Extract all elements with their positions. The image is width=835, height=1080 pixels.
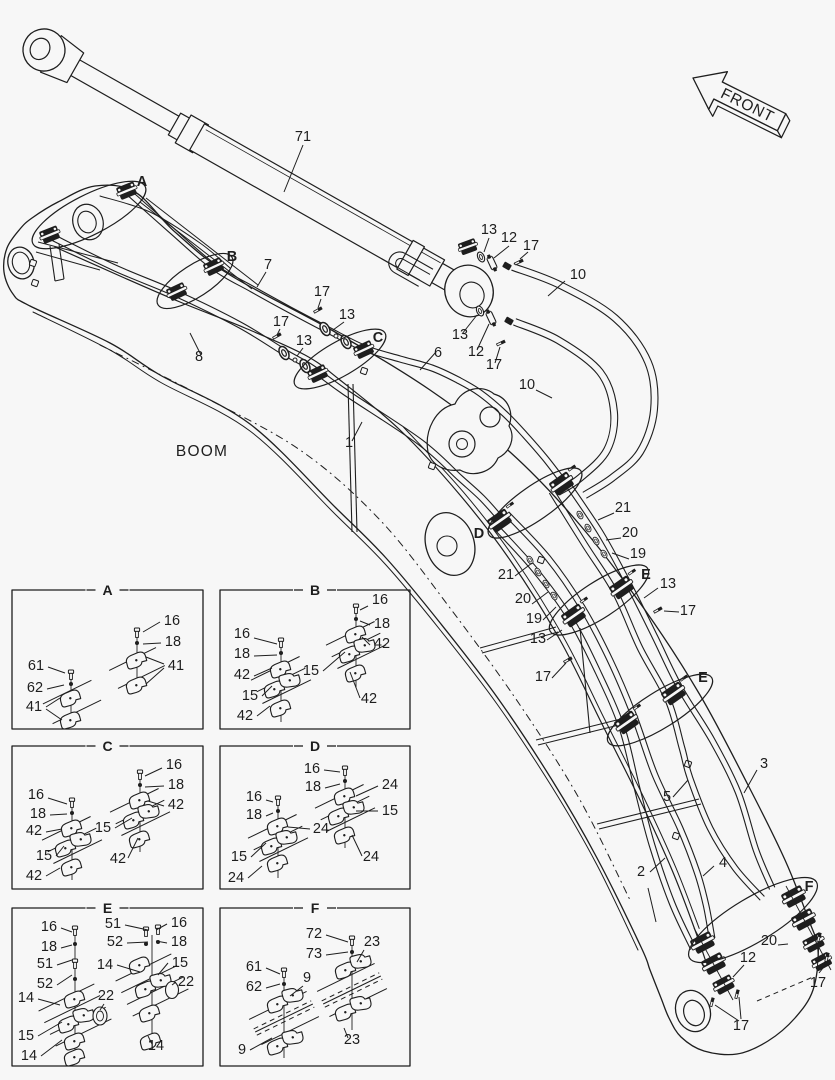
svg-text:10: 10: [570, 267, 586, 283]
svg-text:42: 42: [361, 691, 377, 707]
svg-text:E: E: [103, 900, 112, 916]
svg-text:F: F: [311, 900, 320, 916]
svg-text:41: 41: [168, 658, 184, 674]
svg-text:24: 24: [363, 849, 379, 865]
svg-text:13: 13: [660, 576, 676, 592]
svg-text:14: 14: [97, 957, 113, 973]
svg-text:2: 2: [637, 864, 645, 880]
svg-text:16: 16: [28, 787, 44, 803]
svg-text:61: 61: [246, 959, 262, 975]
svg-text:1: 1: [345, 435, 353, 451]
svg-text:19: 19: [630, 546, 646, 562]
svg-text:17: 17: [810, 975, 826, 991]
svg-text:12: 12: [740, 950, 756, 966]
svg-text:18: 18: [171, 934, 187, 950]
svg-text:42: 42: [26, 823, 42, 839]
svg-text:12: 12: [501, 230, 517, 246]
svg-text:17: 17: [523, 238, 539, 254]
svg-text:10: 10: [519, 377, 535, 393]
svg-text:A: A: [102, 582, 112, 598]
svg-text:BOOM: BOOM: [176, 443, 228, 460]
svg-text:18: 18: [305, 779, 321, 795]
svg-text:17: 17: [486, 357, 502, 373]
svg-text:42: 42: [374, 636, 390, 652]
svg-text:20: 20: [515, 591, 531, 607]
svg-text:24: 24: [313, 821, 329, 837]
svg-text:3: 3: [760, 756, 768, 772]
svg-text:B: B: [227, 249, 237, 265]
svg-text:42: 42: [237, 708, 253, 724]
svg-text:14: 14: [18, 990, 34, 1006]
svg-text:52: 52: [37, 976, 53, 992]
svg-text:A: A: [137, 174, 148, 190]
svg-text:E: E: [698, 670, 708, 686]
svg-text:61: 61: [28, 658, 44, 674]
svg-text:15: 15: [231, 849, 247, 865]
svg-text:15: 15: [172, 955, 188, 971]
svg-text:73: 73: [306, 946, 322, 962]
svg-text:18: 18: [234, 646, 250, 662]
svg-text:18: 18: [41, 939, 57, 955]
svg-text:15: 15: [95, 820, 111, 836]
svg-text:5: 5: [663, 789, 671, 805]
svg-text:24: 24: [228, 870, 244, 886]
svg-text:18: 18: [374, 616, 390, 632]
svg-text:16: 16: [171, 915, 187, 931]
svg-text:13: 13: [296, 333, 312, 349]
svg-text:16: 16: [41, 919, 57, 935]
svg-text:42: 42: [168, 797, 184, 813]
svg-text:17: 17: [273, 314, 289, 330]
svg-text:17: 17: [680, 603, 696, 619]
svg-text:C: C: [102, 738, 112, 754]
svg-text:19: 19: [526, 611, 542, 627]
svg-text:42: 42: [26, 868, 42, 884]
svg-text:9: 9: [303, 970, 311, 986]
svg-text:51: 51: [105, 916, 121, 932]
svg-text:17: 17: [535, 669, 551, 685]
svg-text:62: 62: [246, 979, 262, 995]
svg-text:52: 52: [107, 934, 123, 950]
svg-text:17: 17: [314, 284, 330, 300]
svg-text:17: 17: [733, 1018, 749, 1034]
svg-text:51: 51: [37, 956, 53, 972]
svg-text:15: 15: [36, 848, 52, 864]
svg-text:C: C: [373, 330, 384, 346]
svg-text:42: 42: [110, 851, 126, 867]
svg-text:72: 72: [306, 926, 322, 942]
svg-text:16: 16: [372, 592, 388, 608]
svg-text:B: B: [310, 582, 320, 598]
svg-text:12: 12: [468, 344, 484, 360]
svg-text:16: 16: [234, 626, 250, 642]
svg-text:4: 4: [719, 855, 727, 871]
svg-text:20: 20: [622, 525, 638, 541]
svg-text:16: 16: [164, 613, 180, 629]
svg-text:62: 62: [27, 680, 43, 696]
svg-text:15: 15: [382, 803, 398, 819]
svg-text:9: 9: [238, 1042, 246, 1058]
svg-text:13: 13: [530, 631, 546, 647]
svg-text:18: 18: [246, 807, 262, 823]
svg-text:16: 16: [166, 757, 182, 773]
svg-text:15: 15: [242, 688, 258, 704]
svg-text:7: 7: [264, 257, 272, 273]
svg-text:F: F: [805, 879, 814, 895]
svg-text:16: 16: [246, 789, 262, 805]
svg-text:E: E: [641, 567, 651, 583]
svg-text:D: D: [474, 526, 484, 542]
svg-text:18: 18: [168, 777, 184, 793]
svg-text:21: 21: [615, 500, 631, 516]
svg-text:22: 22: [98, 988, 114, 1004]
svg-text:14: 14: [21, 1048, 37, 1064]
svg-text:22: 22: [178, 974, 194, 990]
svg-text:15: 15: [18, 1028, 34, 1044]
svg-text:20: 20: [761, 933, 777, 949]
svg-text:18: 18: [165, 634, 181, 650]
svg-text:15: 15: [303, 663, 319, 679]
svg-text:D: D: [310, 738, 320, 754]
svg-text:16: 16: [304, 761, 320, 777]
svg-text:21: 21: [498, 567, 514, 583]
svg-text:42: 42: [234, 667, 250, 683]
svg-text:41: 41: [26, 699, 42, 715]
svg-text:18: 18: [30, 806, 46, 822]
svg-text:13: 13: [339, 307, 355, 323]
svg-text:24: 24: [382, 777, 398, 793]
svg-text:71: 71: [295, 129, 311, 145]
svg-text:23: 23: [364, 934, 380, 950]
svg-text:13: 13: [481, 222, 497, 238]
